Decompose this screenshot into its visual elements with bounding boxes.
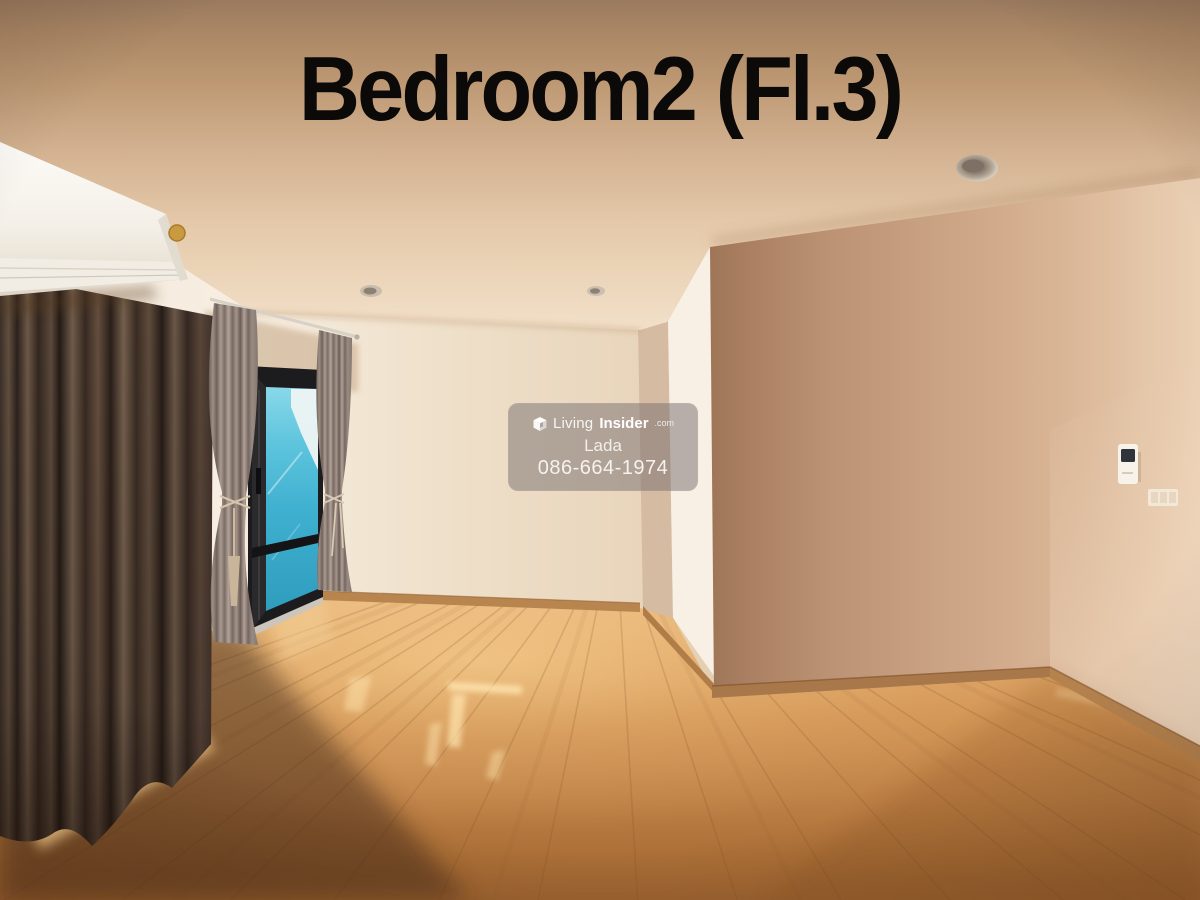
watermark-brand: LivingInsider.com [508,414,698,434]
living-insider-cube-icon [532,416,548,432]
watermark-phone: 086-664-1974 [508,457,698,480]
page-title: Bedroom2 (Fl.3) [42,44,1158,135]
brand-second: Insider [599,415,648,433]
watermark: LivingInsider.com Lada 086-664-1974 [508,403,698,491]
brand-suffix: .com [655,414,675,434]
watermark-agent-name: Lada [508,435,698,456]
brand-first: Living [553,415,593,433]
room-photo-bedroom2: Bedroom2 (Fl.3) LivingInsider.com Lada 0… [0,0,1200,900]
